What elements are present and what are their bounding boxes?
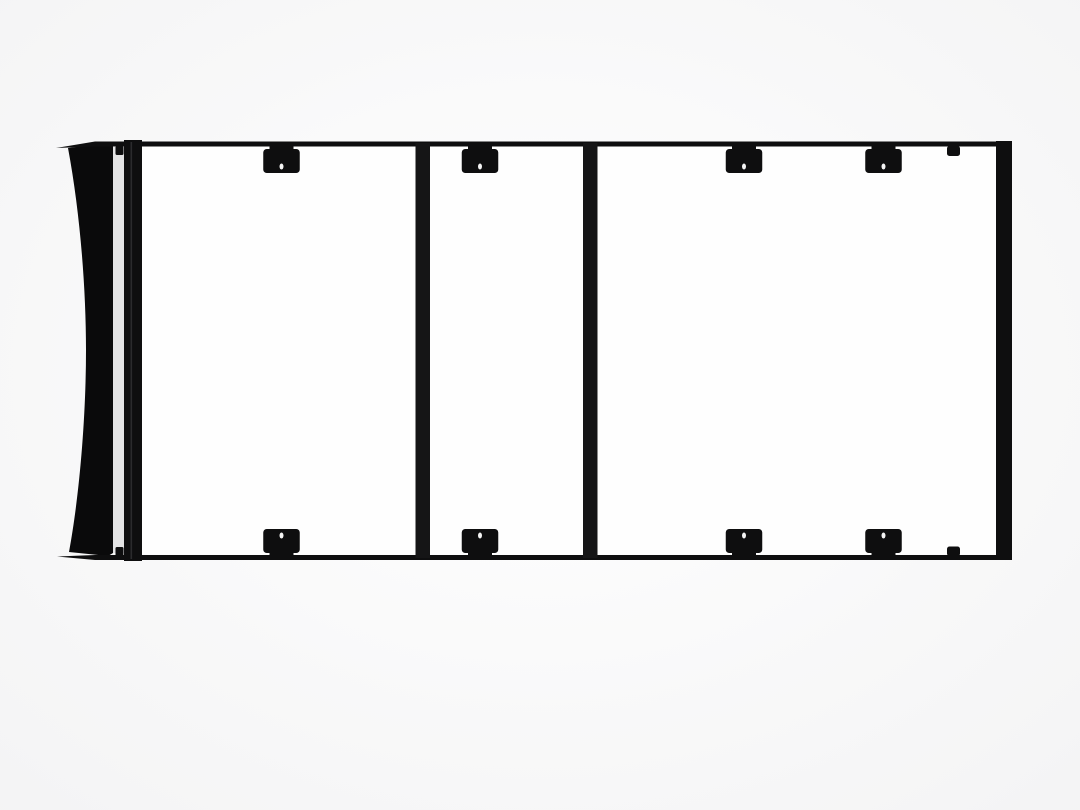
mounting-bracket-bottom-2-bolt-hole xyxy=(478,533,482,539)
left-side-rail-seam xyxy=(131,142,133,559)
mounting-bracket-top-2-bolt-hole xyxy=(478,164,482,170)
mounting-bracket-bottom-1-bolt-hole xyxy=(280,533,284,539)
mounting-bracket-top-1-bolt-hole xyxy=(280,164,284,170)
clamp-tab-bottom-right xyxy=(947,547,960,557)
crossbar-2 xyxy=(583,143,598,558)
left-side-rail xyxy=(124,140,142,561)
mounting-bracket-top-3-bolt-hole xyxy=(742,164,746,170)
right-side-rail xyxy=(996,141,1012,560)
clamp-tab-top-left xyxy=(116,146,124,155)
mounting-bracket-bottom-4-bolt-hole xyxy=(882,533,886,539)
roof-rack-illustration xyxy=(0,0,1080,810)
mounting-bracket-bottom-3-bolt-hole xyxy=(742,533,746,539)
mounting-bracket-top-4-bolt-hole xyxy=(882,164,886,170)
clamp-tab-top-right xyxy=(947,146,960,156)
rack-interior xyxy=(132,147,1004,555)
product-image xyxy=(0,0,1080,810)
crossbar-1 xyxy=(416,143,431,558)
clamp-tab-bottom-left xyxy=(116,547,124,556)
